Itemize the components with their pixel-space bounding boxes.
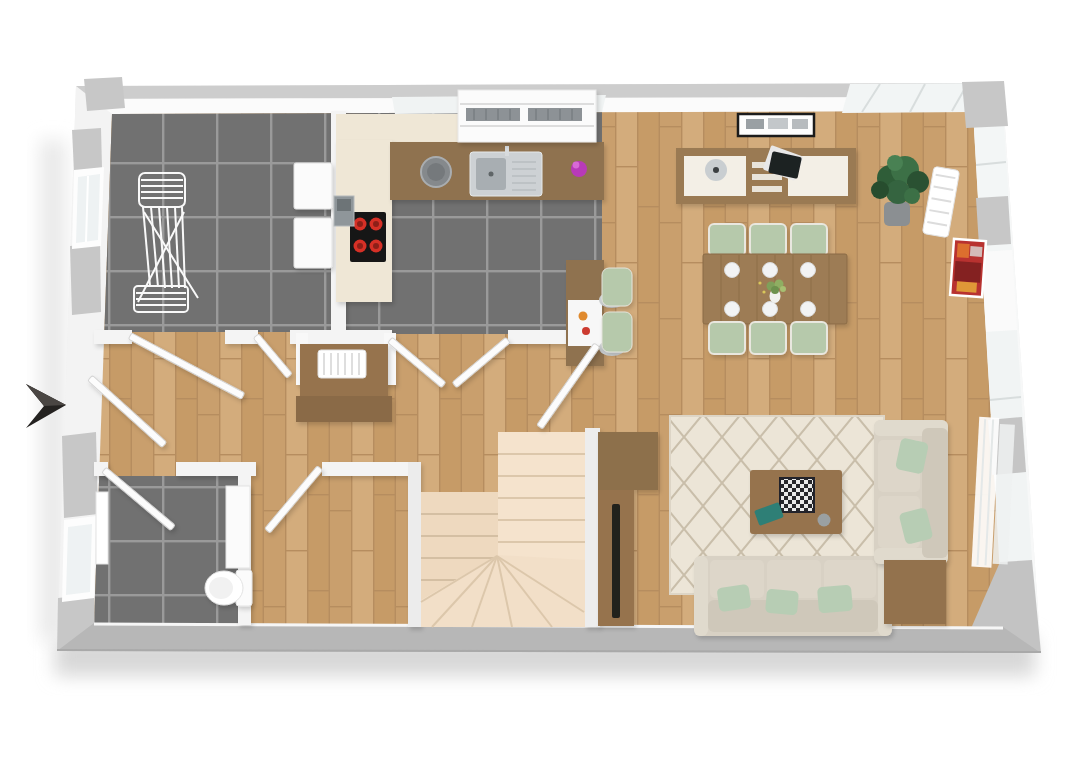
sideboard-drawer <box>752 174 782 180</box>
coaster <box>818 514 831 527</box>
dryer <box>294 218 332 268</box>
dining-chair <box>750 224 786 256</box>
counter-bowl-inner <box>427 163 445 181</box>
dining-chair <box>709 224 745 256</box>
bathroom-floor <box>94 476 238 628</box>
coffee-table-group <box>750 470 842 534</box>
bathroom-window <box>62 516 96 602</box>
floorplan-render <box>0 0 1080 764</box>
vase-opening <box>713 167 719 173</box>
wall-picture-frame <box>738 114 814 136</box>
toilet-seat <box>209 577 233 599</box>
two-seat-sofa <box>874 420 948 564</box>
bar-stool <box>602 268 632 306</box>
faucet <box>505 146 509 156</box>
window-shelf-unit <box>458 90 596 142</box>
vanity-cabinet <box>226 486 250 568</box>
plant-pot <box>884 202 910 226</box>
red-abstract-art <box>950 239 986 297</box>
laundry-window <box>72 167 104 249</box>
flat-tv <box>612 504 620 618</box>
dining-chair <box>709 322 745 354</box>
wall-bottom-c <box>322 462 412 476</box>
chess-board <box>780 478 814 512</box>
breakfast-bar-ledge <box>568 300 602 346</box>
sideboard-drawer <box>752 186 782 192</box>
purple-jar-lid <box>573 162 580 169</box>
kitchen-sink <box>470 146 542 196</box>
green-pillow <box>765 589 799 616</box>
hallway-console <box>296 344 392 422</box>
right-wall-cap-1 <box>962 81 1008 128</box>
bottom-wall <box>57 623 1041 653</box>
tv-cabinet <box>598 432 658 490</box>
stairs-upper-flight <box>498 432 585 560</box>
sofa-arm <box>694 556 708 636</box>
sideboard-group <box>676 145 856 204</box>
green-pillow <box>817 585 853 614</box>
floorplan-canvas <box>0 0 1080 764</box>
console-lower-shelf <box>296 396 392 422</box>
left-wall-cap-2 <box>70 243 101 315</box>
wall-hall-top-b <box>225 330 258 344</box>
toilet <box>205 570 252 606</box>
bathroom-radiator <box>96 492 108 564</box>
stairs-wall-right <box>585 428 600 627</box>
metal-bin-opening <box>337 199 351 211</box>
left-wall-cap-1 <box>72 128 102 171</box>
red-fruit <box>582 327 590 335</box>
washing-machine <box>294 163 332 209</box>
left-wall-cap-3 <box>62 432 98 518</box>
corner-cap-top-left <box>84 77 125 111</box>
orange-fruit <box>579 312 588 321</box>
dining-chair <box>791 322 827 354</box>
dining-chair <box>791 224 827 256</box>
three-seat-sofa <box>694 556 892 636</box>
right-wall-cap-2 <box>976 196 1011 246</box>
bar-stool <box>602 312 632 352</box>
corner-side-table <box>884 560 946 624</box>
upper-cabinets <box>336 114 466 142</box>
right-wall-section <box>981 250 1017 332</box>
wall-hall-top-a <box>94 330 132 344</box>
dining-chair <box>750 322 786 354</box>
stairs-wall-left <box>408 462 421 627</box>
green-pillow <box>716 584 751 612</box>
